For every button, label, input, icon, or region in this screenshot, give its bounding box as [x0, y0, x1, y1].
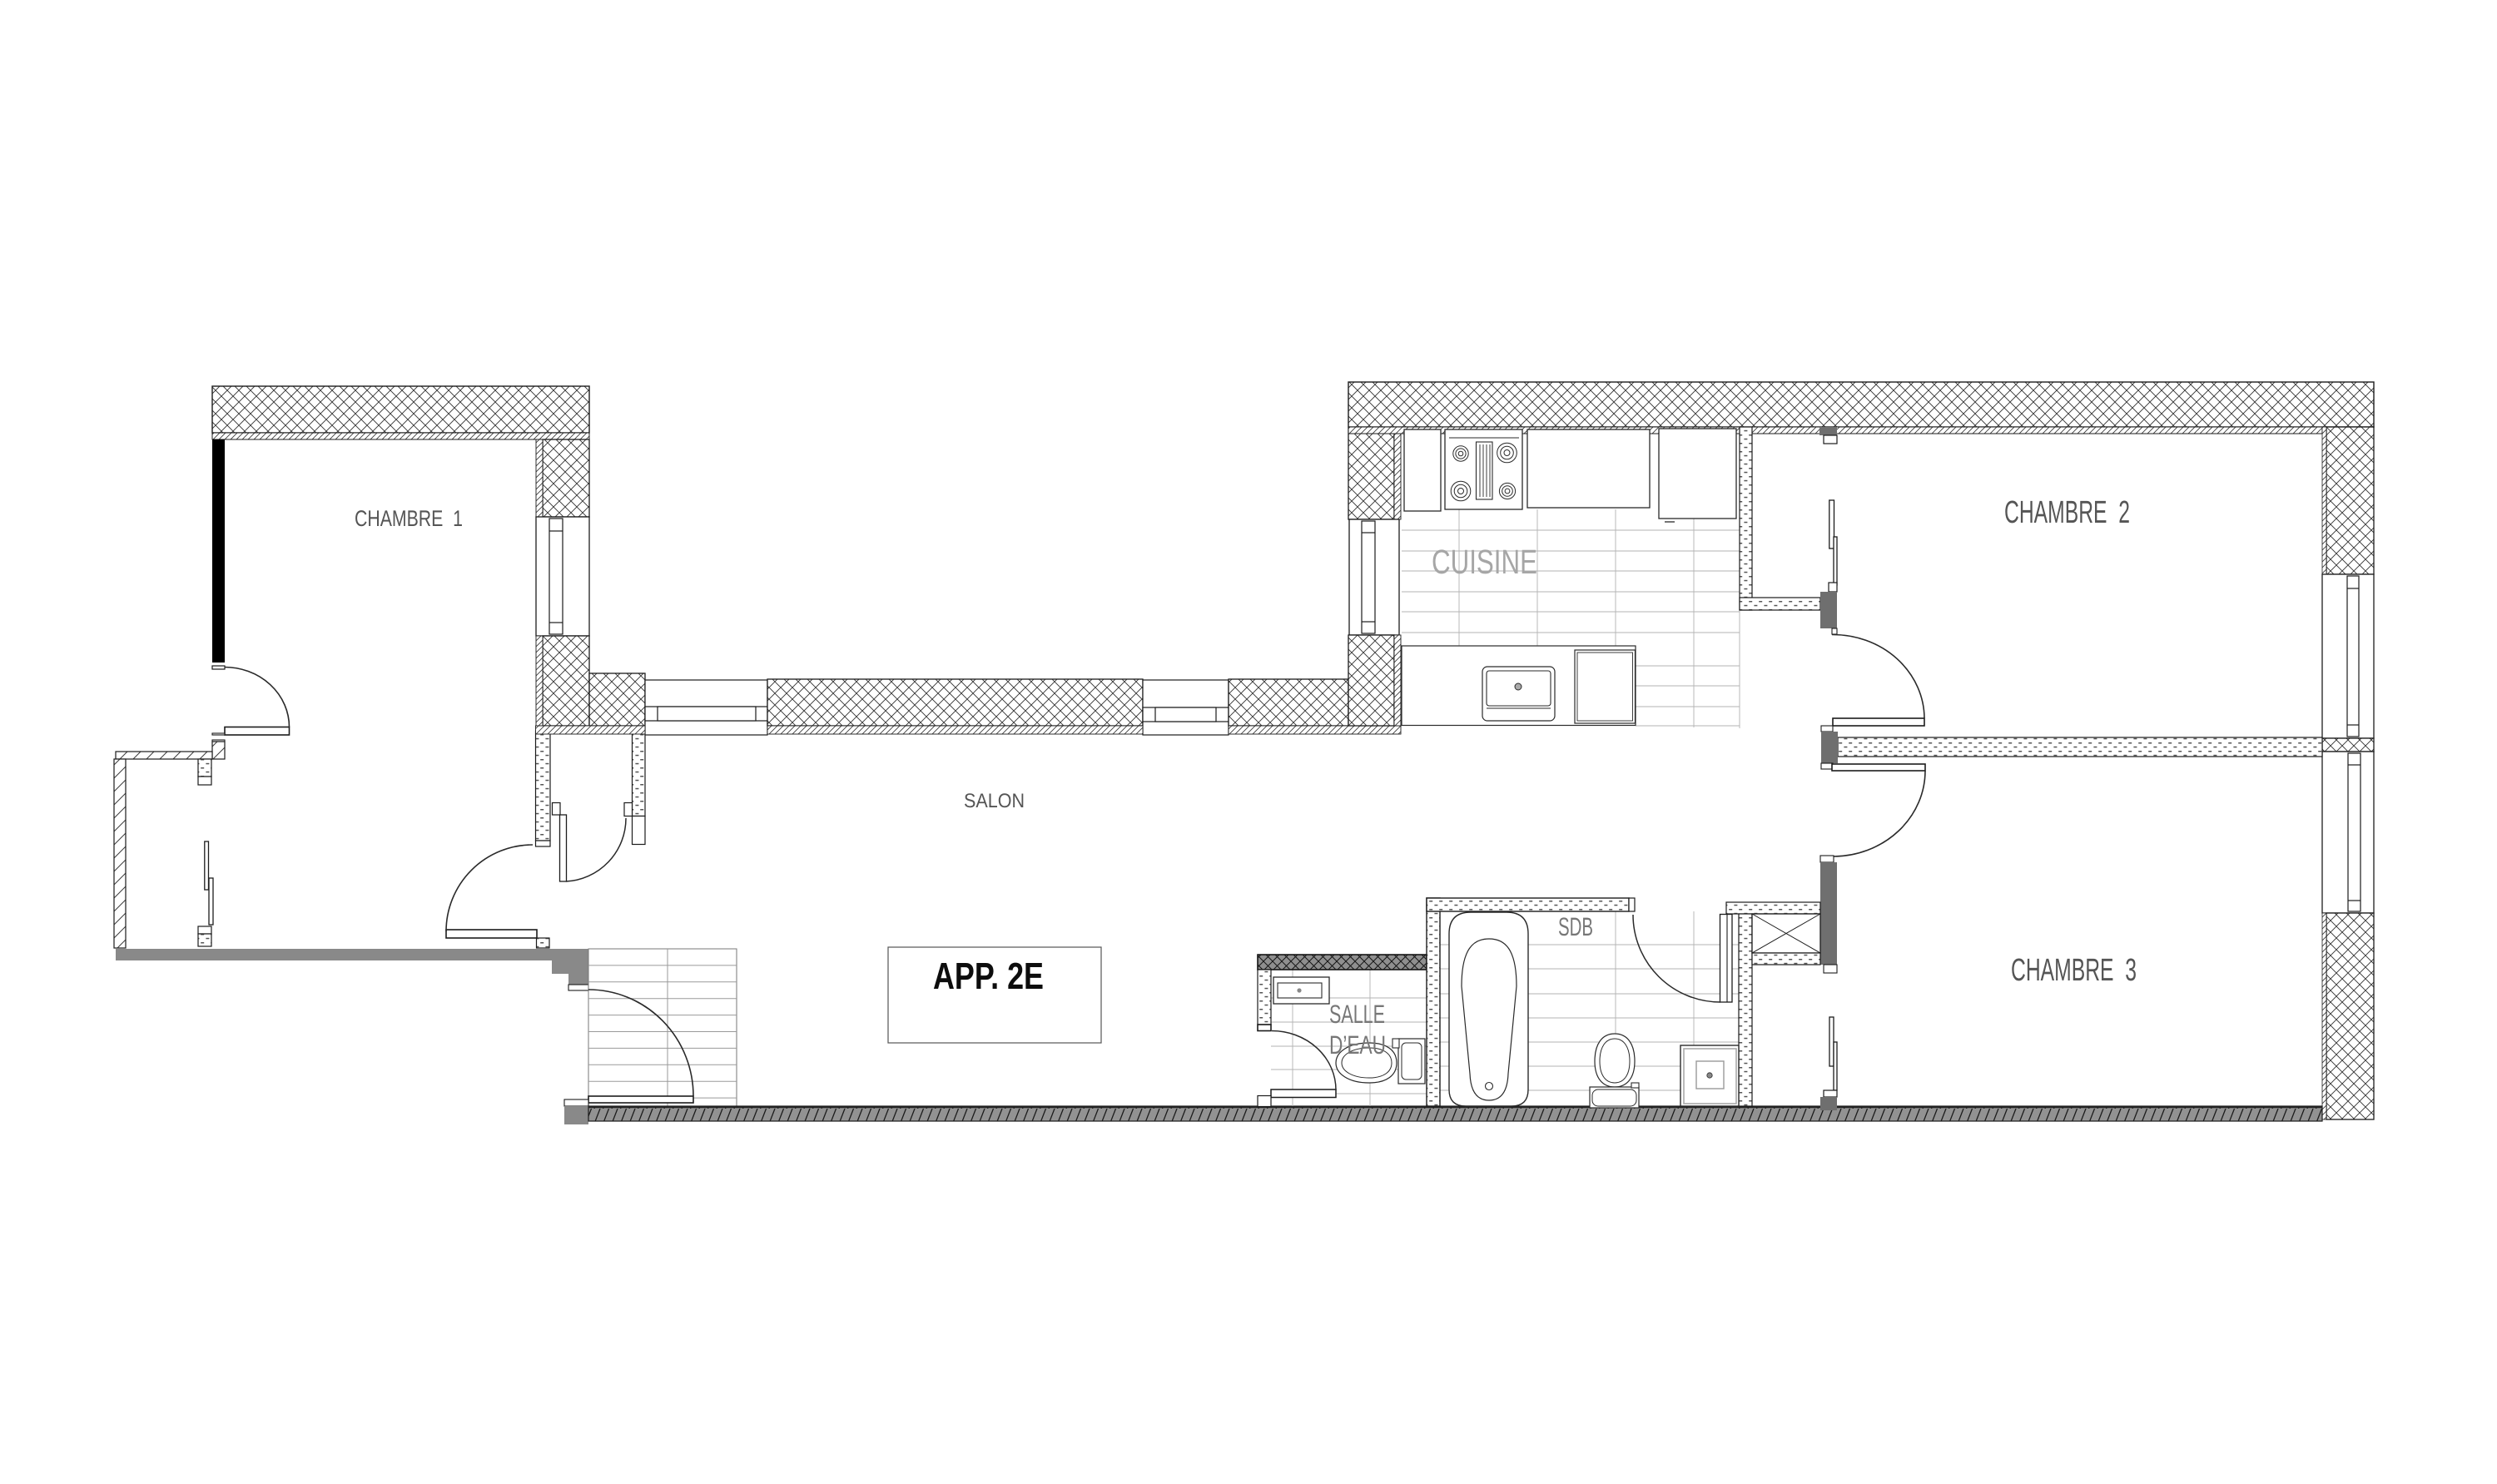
svg-text:CUISINE: CUISINE — [1432, 543, 1537, 581]
svg-text:CHAMBRE 1: CHAMBRE 1 — [355, 506, 463, 531]
svg-text:SALON: SALON — [964, 790, 1025, 812]
svg-text:D’EAU: D’EAU — [1329, 1030, 1386, 1060]
svg-text:SDB: SDB — [1558, 912, 1593, 941]
svg-text:APP. 2E: APP. 2E — [933, 955, 1044, 997]
svg-text:SALLE: SALLE — [1329, 1000, 1385, 1029]
svg-text:CHAMBRE 2: CHAMBRE 2 — [2004, 495, 2130, 530]
svg-text:CHAMBRE 3: CHAMBRE 3 — [2011, 953, 2137, 988]
